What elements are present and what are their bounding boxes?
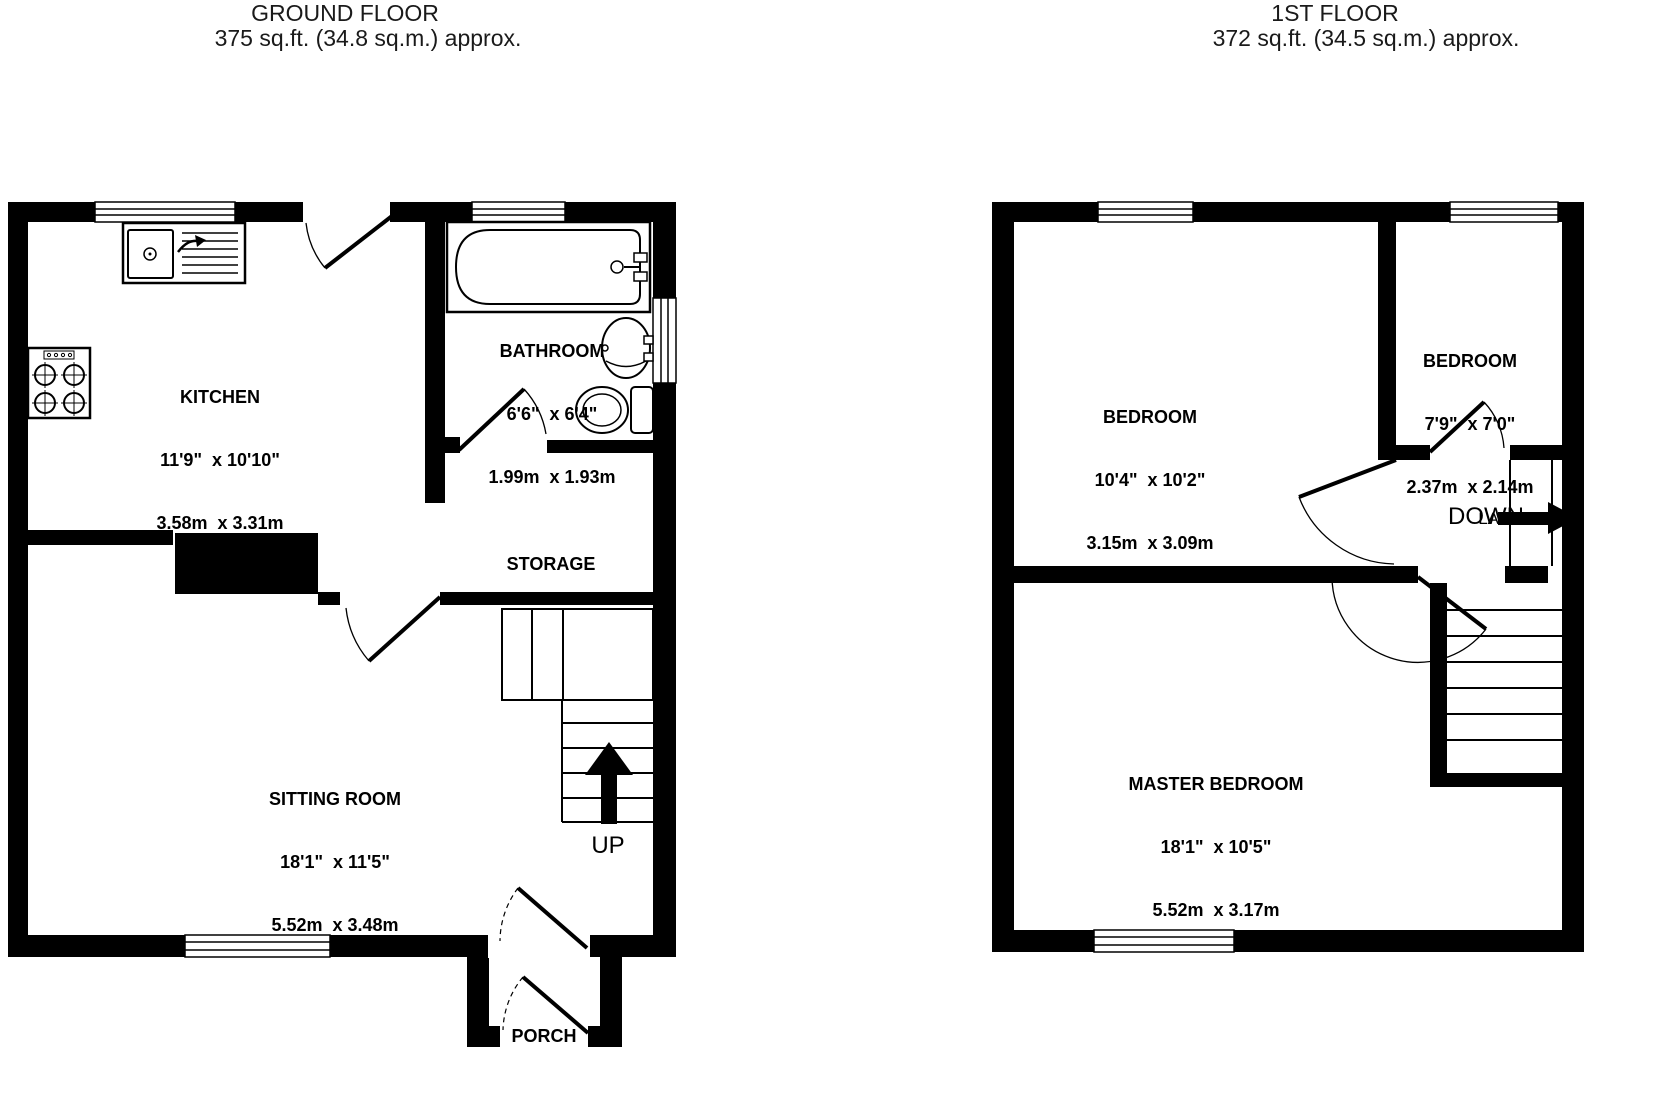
- room-dims-imperial: 18'1" x 10'5": [1129, 837, 1304, 858]
- room-dims-imperial: 6'6" x 6'4": [488, 404, 615, 425]
- master-bedroom-door: [1332, 577, 1486, 662]
- back-door: [306, 216, 392, 268]
- door-leaf: [325, 216, 392, 268]
- storage-label: STORAGE: [507, 512, 596, 617]
- bedroom-front-door: [1299, 460, 1396, 564]
- room-name: KITCHEN: [156, 387, 283, 408]
- kitchen-sink: [123, 223, 245, 283]
- ground-floor-area: 375 sq.ft. (34.8 sq.m.) approx.: [215, 26, 522, 50]
- master-bedroom-label: MASTER BEDROOM 18'1" x 10'5" 5.52m x 3.1…: [1129, 732, 1304, 963]
- room-dims-metric: 1.99m x 1.93m: [488, 467, 615, 488]
- room-dims-metric: 3.15m x 3.09m: [1086, 533, 1213, 554]
- door-leaf: [1299, 460, 1396, 497]
- door-arc: [346, 608, 369, 661]
- door-arc: [306, 223, 325, 268]
- room-dims-imperial: 10'4" x 10'2": [1086, 470, 1213, 491]
- kitchen-window: [95, 202, 235, 222]
- door-arc: [1332, 577, 1486, 662]
- up-label: UP: [591, 832, 624, 860]
- door-arc: [500, 888, 518, 941]
- room-name: STORAGE: [507, 554, 596, 575]
- room-dims-imperial: 18'1" x 11'5": [269, 852, 401, 873]
- room-dims-metric: 5.52m x 3.48m: [269, 915, 401, 936]
- bathroom-side-window: [653, 298, 676, 383]
- bedroom-front-window: [1098, 202, 1193, 222]
- sitting-room-label: SITTING ROOM 18'1" x 11'5" 5.52m x 3.48m: [269, 747, 401, 978]
- door-leaf: [1418, 577, 1486, 629]
- door-leaf: [369, 597, 440, 661]
- room-name: SITTING ROOM: [269, 789, 401, 810]
- floorplan-canvas: GROUND FLOOR 375 sq.ft. (34.8 sq.m.) app…: [0, 0, 1680, 1104]
- room-dims-metric: 2.37m x 2.14m: [1406, 477, 1533, 498]
- room-name: MASTER BEDROOM: [1129, 774, 1304, 795]
- first-floor-area: 372 sq.ft. (34.5 sq.m.) approx.: [1213, 26, 1520, 50]
- first-floor-title: 1ST FLOOR: [1271, 1, 1398, 25]
- room-name: BEDROOM: [1406, 351, 1533, 372]
- room-dims-metric: 3.58m x 3.31m: [156, 513, 283, 534]
- kitchen-label: KITCHEN 11'9" x 10'10" 3.58m x 3.31m: [156, 345, 283, 576]
- room-name: BATHROOM: [488, 341, 615, 362]
- porch-label: PORCH: [511, 984, 576, 1089]
- room-name: PORCH: [511, 1026, 576, 1047]
- room-dims-metric: 5.52m x 3.17m: [1129, 900, 1304, 921]
- bathroom-label: BATHROOM 6'6" x 6'4" 1.99m x 1.93m: [488, 299, 615, 530]
- hob: [28, 348, 90, 418]
- up-arrow-icon: [585, 742, 633, 824]
- door-arc: [1299, 497, 1394, 564]
- bedroom-small-window: [1450, 202, 1558, 222]
- room-dims-imperial: 11'9" x 10'10": [156, 450, 283, 471]
- staircase-up: [502, 609, 653, 822]
- ground-floor-title: GROUND FLOOR: [251, 1, 439, 25]
- room-name: BEDROOM: [1086, 407, 1213, 428]
- bathroom-window: [472, 202, 565, 222]
- room-dims-imperial: 7'9" x 7'0": [1406, 414, 1533, 435]
- bedroom-front-label: BEDROOM 10'4" x 10'2" 3.15m x 3.09m: [1086, 365, 1213, 596]
- hall-door: [346, 597, 440, 661]
